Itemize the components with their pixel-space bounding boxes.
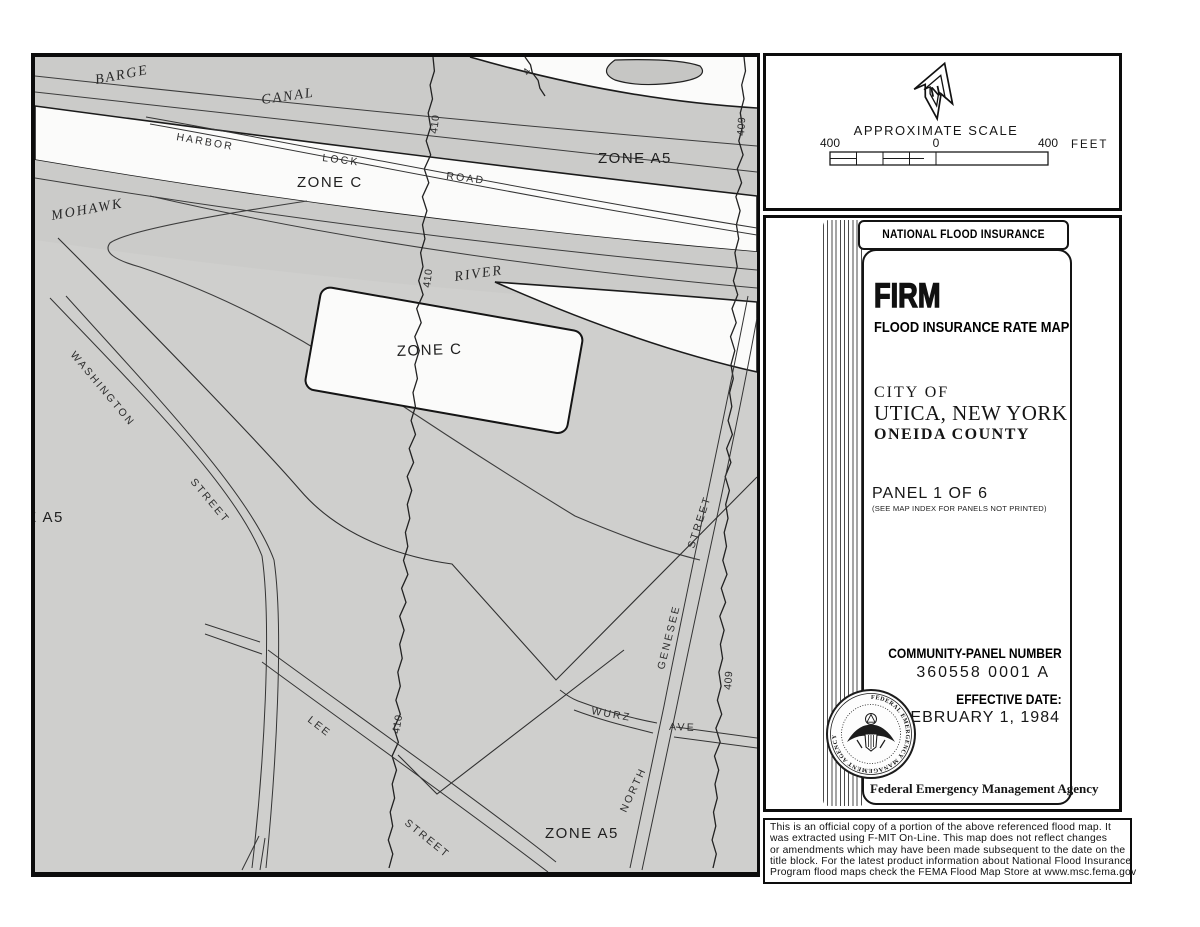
map-label-contour-410-mid: 410: [421, 268, 435, 288]
map-label-contour-409-low: 409: [722, 670, 735, 690]
map-label-zone-a5-left: ZONE A5: [35, 509, 64, 526]
map-label-zone-a5-top: ZONE A5: [598, 150, 672, 167]
effective-date-label: EFFECTIVE DATE:: [957, 691, 1062, 707]
map-label-zone-c-corridor: ZONE C: [297, 174, 363, 191]
disclaimer-line: was extracted using F-MIT On-Line. This …: [770, 833, 1125, 844]
disclaimer-line: This is an official copy of a portion of…: [770, 822, 1125, 833]
community-panel-label: COMMUNITY-PANEL NUMBER: [889, 645, 1062, 661]
flood-map-drawing: BARGE CANAL MOHAWK RIVER HARBOR LOCK ROA…: [35, 57, 757, 872]
disclaimer-line: or amendments which may have been made s…: [770, 845, 1125, 856]
map-label-zone-c-island: ZONE C: [397, 341, 463, 360]
map-label-zone-a5-bottom: ZONE A5: [545, 825, 619, 842]
scale-zero-value: 0: [933, 136, 940, 150]
nfip-header-box: NATIONAL FLOOD INSURANCE PROGRAM: [858, 220, 1069, 250]
scale-panel-drawing: N APPROXIMATE SCALE 400 0 400 FEET: [766, 56, 1113, 202]
community-panel-value: 360558 0001 A: [916, 664, 1050, 682]
community-line1: CITY OF: [874, 384, 949, 402]
map-label-contour-409-top: 409: [735, 116, 748, 136]
scale-panel: N APPROXIMATE SCALE 400 0 400 FEET: [763, 53, 1122, 211]
effective-date-value: FEBRUARY 1, 1984: [900, 709, 1060, 727]
disclaimer-box: This is an official copy of a portion of…: [763, 818, 1132, 884]
disclaimer-line: Program flood maps check the FEMA Flood …: [770, 867, 1125, 878]
disclaimer-line: title block. For the latest product info…: [770, 856, 1125, 867]
firm-logo: FIRM: [874, 277, 940, 316]
flood-map-panel: BARGE CANAL MOHAWK RIVER HARBOR LOCK ROA…: [31, 53, 760, 877]
map-label-ave: AVE: [669, 721, 696, 734]
scale-left-value: 400: [820, 136, 840, 150]
panel-note: (SEE MAP INDEX FOR PANELS NOT PRINTED): [872, 504, 1047, 513]
north-arrow-icon: N: [908, 57, 964, 122]
firm-subtitle: FLOOD INSURANCE RATE MAP: [874, 319, 1069, 336]
panel-number: PANEL 1 OF 6: [872, 485, 988, 503]
community-line3: ONEIDA COUNTY: [874, 426, 1030, 444]
scale-unit: FEET: [1071, 139, 1108, 151]
scale-bar: [830, 152, 1048, 165]
agency-name: Federal Emergency Management Agency: [870, 781, 1099, 797]
scale-right-value: 400: [1038, 136, 1058, 150]
canal-island: [607, 60, 703, 85]
title-block-panel: NATIONAL FLOOD INSURANCE PROGRAM FIRM FL…: [763, 215, 1122, 812]
map-label-contour-410-top: 410: [428, 114, 442, 134]
fema-seal: FEDERAL EMERGENCY MANAGEMENT AGENCY: [823, 686, 919, 782]
community-line2: UTICA, NEW YORK: [874, 401, 1068, 426]
